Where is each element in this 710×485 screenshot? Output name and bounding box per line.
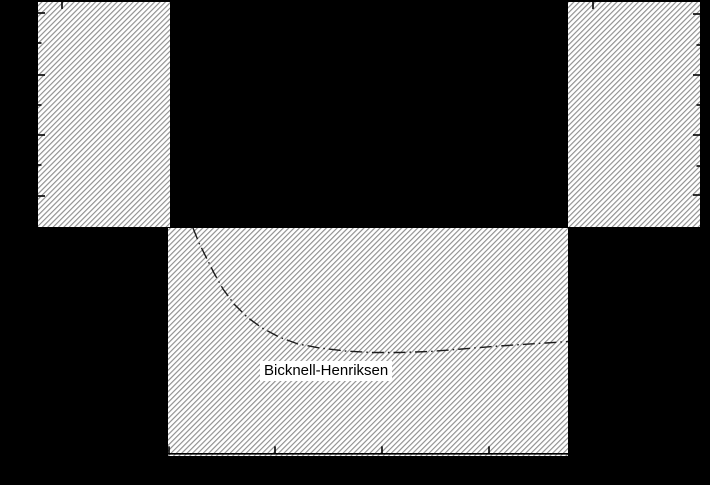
- upper-left-hatched-region: [38, 2, 170, 227]
- death-valley-plot: [0, 0, 710, 485]
- lower-center-hatched-region: [168, 228, 568, 456]
- figure-canvas: Bicknell-Henriksen: [0, 0, 710, 485]
- curve-label: Bicknell-Henriksen: [260, 361, 392, 381]
- upper-right-hatched-region: [568, 2, 700, 227]
